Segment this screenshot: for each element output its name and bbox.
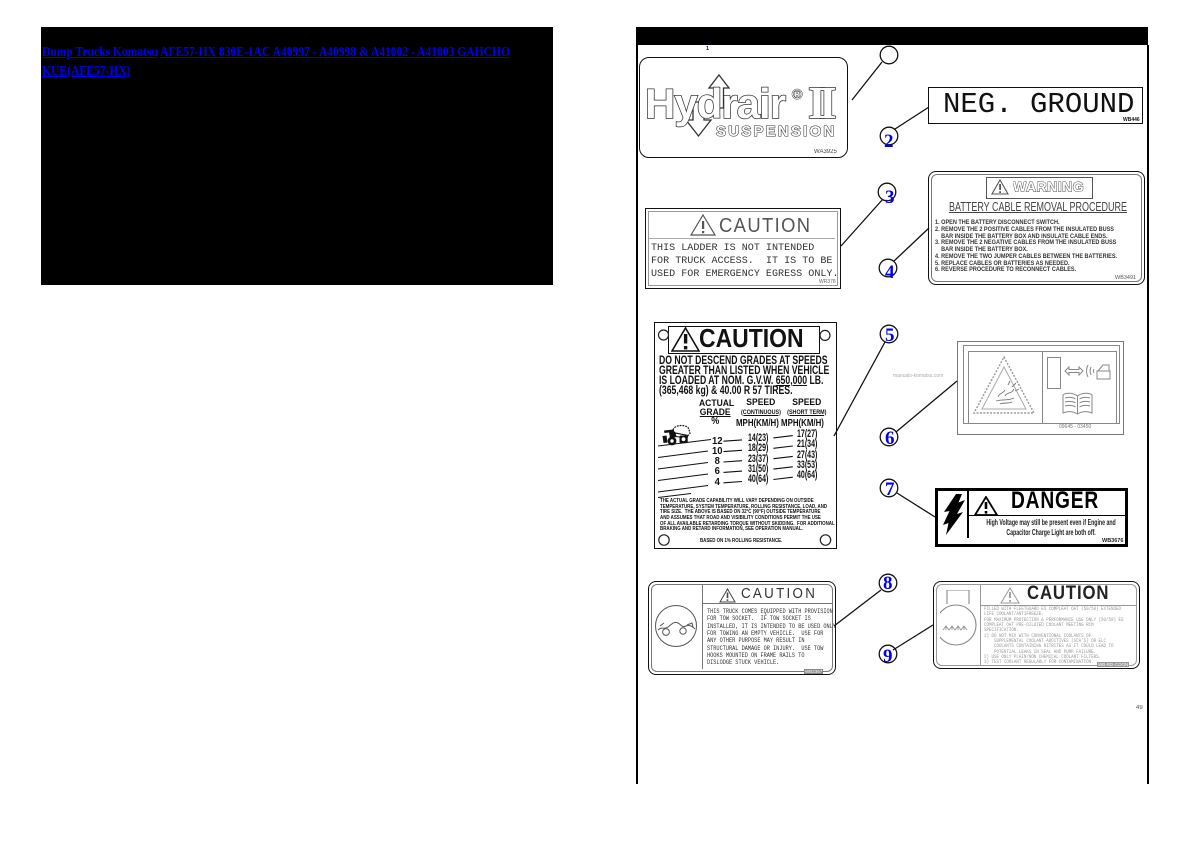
svg-text:4: 4 — [885, 262, 895, 283]
svg-text:3: 3 — [885, 187, 895, 208]
svg-text:2: 2 — [884, 131, 894, 152]
svg-text:9: 9 — [883, 646, 893, 667]
svg-text:5: 5 — [885, 325, 895, 346]
svg-text:6: 6 — [885, 428, 895, 449]
svg-text:8: 8 — [883, 573, 893, 594]
svg-text:7: 7 — [885, 479, 895, 500]
